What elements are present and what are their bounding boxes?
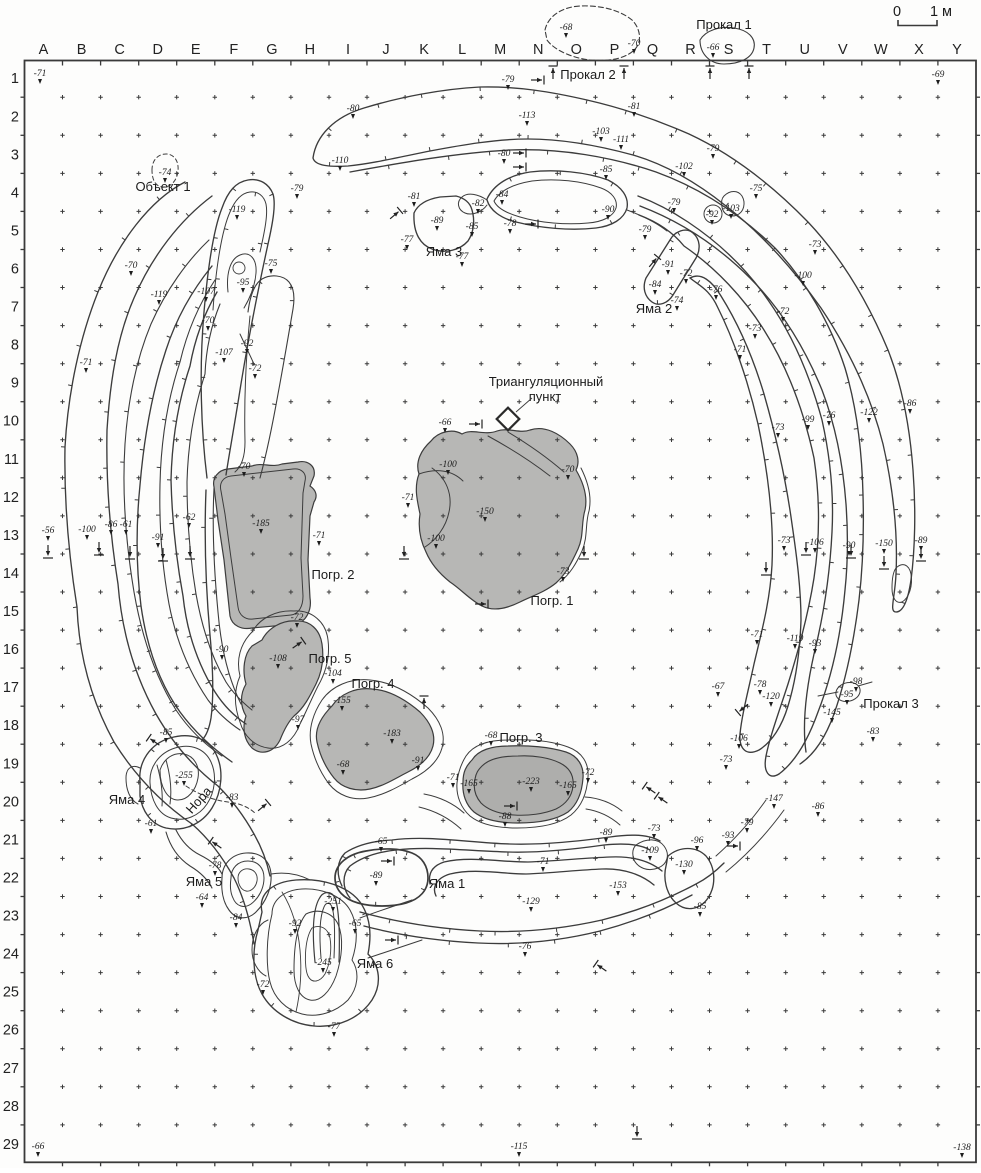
svg-text:-70: -70 — [238, 462, 251, 472]
svg-text:-81: -81 — [408, 192, 421, 202]
svg-text:-76: -76 — [823, 411, 836, 421]
svg-text:23: 23 — [3, 909, 19, 925]
svg-text:Q: Q — [647, 42, 658, 58]
svg-text:-84: -84 — [649, 280, 662, 290]
svg-text:-84: -84 — [230, 913, 243, 923]
svg-text:Яма 6: Яма 6 — [357, 956, 393, 971]
svg-text:-66: -66 — [32, 1142, 45, 1152]
svg-text:-89: -89 — [915, 536, 928, 546]
svg-text:-68: -68 — [485, 731, 498, 741]
svg-text:-92: -92 — [706, 210, 719, 220]
svg-text:D: D — [152, 42, 162, 58]
svg-text:-89: -89 — [370, 871, 383, 881]
svg-text:R: R — [685, 42, 695, 58]
svg-text:-165: -165 — [559, 781, 577, 791]
svg-text:-56: -56 — [42, 526, 55, 536]
svg-text:Погр. 4: Погр. 4 — [352, 676, 395, 691]
svg-text:-150: -150 — [476, 507, 494, 517]
svg-text:Объект 1: Объект 1 — [135, 179, 190, 194]
svg-text:-71: -71 — [734, 345, 747, 355]
svg-text:P: P — [610, 42, 620, 58]
svg-text:-72: -72 — [249, 364, 262, 374]
svg-text:-115: -115 — [511, 1142, 528, 1152]
svg-text:-100: -100 — [794, 271, 812, 281]
svg-text:-67: -67 — [712, 682, 726, 692]
svg-text:-85: -85 — [600, 165, 613, 175]
svg-text:8: 8 — [11, 338, 19, 354]
svg-text:-102: -102 — [675, 162, 693, 172]
svg-text:-96: -96 — [691, 836, 704, 846]
svg-text:-83: -83 — [867, 727, 880, 737]
svg-text:-62: -62 — [183, 513, 196, 523]
svg-text:X: X — [914, 42, 924, 58]
svg-text:4: 4 — [11, 185, 19, 201]
svg-text:-95: -95 — [237, 278, 250, 288]
svg-text:S: S — [724, 42, 734, 58]
svg-text:-72: -72 — [582, 768, 595, 778]
svg-text:-84: -84 — [496, 190, 509, 200]
svg-text:-89: -89 — [600, 828, 613, 838]
svg-text:-75: -75 — [265, 259, 278, 269]
svg-text:-70: -70 — [125, 261, 138, 271]
svg-text:0: 0 — [893, 4, 901, 20]
svg-text:-104: -104 — [324, 669, 342, 679]
svg-text:-185: -185 — [252, 519, 270, 529]
svg-text:-68: -68 — [337, 760, 350, 770]
svg-text:-73: -73 — [749, 324, 762, 334]
svg-text:-76: -76 — [710, 285, 723, 295]
svg-text:26: 26 — [3, 1023, 19, 1039]
svg-text:-75: -75 — [750, 184, 763, 194]
svg-text:-83: -83 — [226, 793, 239, 803]
svg-text:-73: -73 — [557, 567, 570, 577]
svg-text:-223: -223 — [522, 777, 540, 787]
svg-text:Яма 3: Яма 3 — [426, 244, 462, 259]
svg-text:-86: -86 — [904, 399, 917, 409]
svg-text:-71: -71 — [447, 773, 460, 783]
svg-text:2: 2 — [11, 109, 19, 125]
svg-text:-81: -81 — [628, 102, 641, 112]
svg-text:18: 18 — [3, 718, 19, 734]
svg-text:-66: -66 — [439, 418, 452, 428]
svg-text:Прокал 3: Прокал 3 — [863, 696, 918, 711]
svg-text:Прокал 2: Прокал 2 — [560, 67, 615, 82]
svg-text:-79: -79 — [502, 75, 515, 85]
svg-text:-71: -71 — [751, 630, 764, 640]
svg-text:-100: -100 — [78, 525, 96, 535]
svg-text:-65: -65 — [375, 837, 388, 847]
svg-text:1: 1 — [11, 71, 19, 87]
svg-text:-150: -150 — [875, 539, 893, 549]
svg-text:20: 20 — [3, 794, 19, 810]
svg-text:-76: -76 — [519, 942, 532, 952]
svg-text:K: K — [419, 42, 429, 58]
svg-text:-71: -71 — [34, 69, 47, 79]
svg-text:-251: -251 — [324, 897, 341, 907]
svg-text:9: 9 — [11, 376, 19, 392]
svg-text:7: 7 — [11, 300, 19, 316]
svg-text:-95: -95 — [841, 690, 854, 700]
svg-text:L: L — [458, 42, 466, 58]
svg-text:11: 11 — [4, 452, 19, 468]
svg-text:-86: -86 — [105, 520, 118, 530]
svg-text:Погр. 1: Погр. 1 — [531, 593, 574, 608]
svg-text:-70: -70 — [562, 465, 575, 475]
svg-text:-93: -93 — [809, 639, 822, 649]
svg-text:-64: -64 — [196, 893, 209, 903]
svg-text:-92: -92 — [241, 339, 254, 349]
svg-text:-85: -85 — [466, 222, 479, 232]
svg-text:O: O — [571, 42, 582, 58]
svg-text:-73: -73 — [809, 240, 822, 250]
svg-text:-103: -103 — [592, 127, 610, 137]
svg-text:-90: -90 — [216, 645, 229, 655]
svg-text:-78: -78 — [504, 219, 517, 229]
svg-text:-165: -165 — [460, 779, 478, 789]
svg-text:Y: Y — [952, 42, 962, 58]
svg-text:-72: -72 — [291, 613, 304, 623]
svg-text:-90: -90 — [602, 205, 615, 215]
svg-text:-72: -72 — [777, 307, 790, 317]
svg-text:22: 22 — [3, 871, 19, 887]
svg-text:-103: -103 — [722, 204, 740, 214]
svg-text:-129: -129 — [522, 897, 540, 907]
svg-text:-97: -97 — [292, 715, 306, 725]
svg-text:-79: -79 — [707, 144, 720, 154]
svg-text:-79: -79 — [639, 225, 652, 235]
svg-text:W: W — [874, 42, 888, 58]
svg-text:-120: -120 — [762, 692, 780, 702]
svg-text:Яма 4: Яма 4 — [109, 792, 145, 807]
svg-text:-91: -91 — [152, 533, 165, 543]
svg-text:19: 19 — [3, 756, 19, 772]
svg-text:-107: -107 — [197, 287, 216, 297]
svg-text:-111: -111 — [613, 135, 629, 145]
svg-text:-78: -78 — [754, 680, 767, 690]
svg-text:-90: -90 — [843, 541, 856, 551]
svg-text:-92: -92 — [289, 919, 302, 929]
svg-text:16: 16 — [3, 642, 19, 658]
svg-text:-73: -73 — [720, 755, 733, 765]
svg-text:J: J — [382, 42, 389, 58]
svg-text:28: 28 — [3, 1099, 19, 1115]
svg-text:Погр. 2: Погр. 2 — [312, 567, 355, 582]
svg-text:-74: -74 — [671, 296, 684, 306]
svg-text:-119: -119 — [787, 634, 804, 644]
svg-text:-100: -100 — [427, 534, 445, 544]
svg-text:13: 13 — [3, 528, 19, 544]
svg-text:5: 5 — [11, 223, 19, 239]
svg-text:-71: -71 — [537, 857, 550, 867]
svg-text:-61: -61 — [120, 520, 133, 530]
svg-text:-70: -70 — [202, 316, 215, 326]
svg-text:-109: -109 — [641, 846, 659, 856]
svg-text:-77: -77 — [328, 1022, 342, 1032]
svg-text:-85: -85 — [160, 728, 173, 738]
svg-text:-89: -89 — [431, 216, 444, 226]
svg-text:3: 3 — [11, 147, 19, 163]
svg-text:-77: -77 — [401, 235, 415, 245]
svg-text:-108: -108 — [269, 654, 287, 664]
svg-text:G: G — [266, 42, 277, 58]
svg-text:-98: -98 — [850, 677, 863, 687]
svg-text:-100: -100 — [439, 460, 457, 470]
svg-text:-88: -88 — [499, 812, 512, 822]
svg-text:Прокал 1: Прокал 1 — [696, 17, 751, 32]
svg-text:-79: -79 — [668, 198, 681, 208]
svg-text:-69: -69 — [932, 70, 945, 80]
svg-text:-106: -106 — [730, 734, 748, 744]
svg-text:V: V — [838, 42, 848, 58]
svg-text:Яма 2: Яма 2 — [636, 301, 672, 316]
svg-text:27: 27 — [3, 1061, 19, 1077]
svg-text:-74: -74 — [159, 168, 172, 178]
svg-text:25: 25 — [3, 985, 19, 1001]
svg-text:-79: -79 — [741, 818, 754, 828]
svg-text:-145: -145 — [823, 708, 841, 718]
svg-text:-85: -85 — [694, 902, 707, 912]
svg-text:-71: -71 — [402, 493, 415, 503]
svg-text:Триангуляционный: Триангуляционный — [489, 374, 604, 389]
svg-text:I: I — [346, 42, 350, 58]
svg-text:-72: -72 — [680, 269, 693, 279]
svg-text:-80: -80 — [347, 104, 360, 114]
svg-text:-73: -73 — [772, 423, 785, 433]
svg-text:F: F — [229, 42, 238, 58]
svg-text:-119: -119 — [229, 205, 246, 215]
svg-text:-73: -73 — [648, 824, 661, 834]
svg-text:-138: -138 — [953, 1143, 971, 1153]
svg-text:-122: -122 — [860, 408, 878, 418]
svg-text:B: B — [77, 42, 87, 58]
svg-text:-130: -130 — [675, 860, 693, 870]
svg-text:-245: -245 — [314, 958, 332, 968]
svg-text:-110: -110 — [332, 156, 349, 166]
svg-text:29: 29 — [3, 1137, 19, 1153]
svg-text:-70: -70 — [628, 39, 641, 49]
svg-text:A: A — [39, 42, 49, 58]
svg-text:21: 21 — [3, 832, 19, 848]
svg-text:Погр. 3: Погр. 3 — [500, 730, 543, 745]
svg-text:-91: -91 — [412, 756, 425, 766]
svg-text:N: N — [533, 42, 543, 58]
svg-text:пункт: пункт — [529, 389, 562, 404]
svg-text:C: C — [114, 42, 124, 58]
svg-text:-66: -66 — [707, 43, 720, 53]
svg-text:-78: -78 — [209, 861, 222, 871]
svg-text:15: 15 — [3, 604, 19, 620]
svg-text:-61: -61 — [145, 819, 158, 829]
svg-text:Яма 5: Яма 5 — [186, 874, 222, 889]
svg-text:17: 17 — [3, 680, 19, 696]
svg-text:T: T — [762, 42, 771, 58]
svg-text:M: M — [494, 42, 506, 58]
svg-text:-153: -153 — [609, 881, 627, 891]
svg-text:-82: -82 — [472, 199, 485, 209]
svg-text:U: U — [799, 42, 809, 58]
svg-text:-183: -183 — [383, 729, 401, 739]
svg-text:-79: -79 — [291, 184, 304, 194]
svg-text:-86: -86 — [812, 802, 825, 812]
svg-text:-119: -119 — [151, 290, 168, 300]
svg-text:-91: -91 — [662, 260, 675, 270]
svg-text:-80: -80 — [498, 149, 511, 159]
svg-text:-65: -65 — [349, 919, 362, 929]
svg-text:Погр. 5: Погр. 5 — [309, 651, 352, 666]
svg-text:-106: -106 — [806, 538, 824, 548]
svg-text:-99: -99 — [802, 415, 815, 425]
svg-text:6: 6 — [11, 262, 19, 278]
svg-text:-72: -72 — [257, 980, 270, 990]
svg-text:-113: -113 — [519, 111, 536, 121]
svg-text:-255: -255 — [175, 771, 193, 781]
svg-text:H: H — [305, 42, 315, 58]
svg-text:10: 10 — [3, 414, 19, 430]
svg-text:24: 24 — [3, 947, 19, 963]
svg-text:-147: -147 — [765, 794, 784, 804]
svg-text:1 м: 1 м — [930, 4, 952, 20]
svg-text:-155: -155 — [333, 696, 351, 706]
svg-text:-68: -68 — [560, 23, 573, 33]
svg-text:12: 12 — [3, 490, 19, 506]
svg-text:Яма 1: Яма 1 — [429, 876, 465, 891]
svg-text:-93: -93 — [722, 831, 735, 841]
svg-text:-71: -71 — [313, 531, 326, 541]
svg-text:-73: -73 — [778, 536, 791, 546]
svg-text:E: E — [191, 42, 201, 58]
svg-text:-107: -107 — [215, 348, 234, 358]
svg-text:-71: -71 — [80, 358, 93, 368]
svg-text:14: 14 — [3, 566, 19, 582]
